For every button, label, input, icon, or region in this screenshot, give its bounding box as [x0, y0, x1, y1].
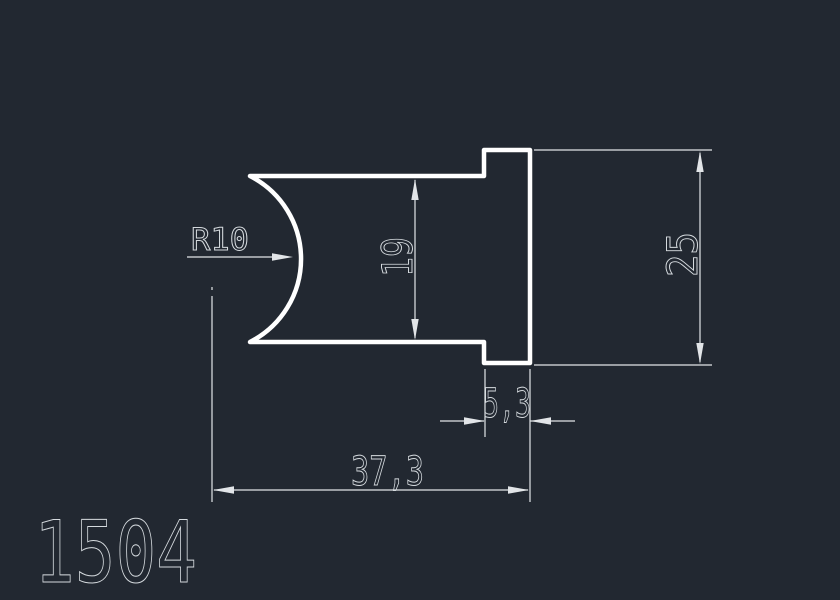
dim-arrowhead-up-icon [696, 151, 703, 172]
overall-height-label: 25 [658, 232, 707, 277]
dim-overall-width: 37,3 [212, 287, 529, 502]
dim-radius: R10 [187, 222, 293, 261]
cad-drawing: R10 19 25 5,3 [0, 0, 840, 600]
radius-label: R10 [191, 222, 249, 258]
dim-arrowhead-right-icon [508, 486, 529, 493]
dim-arrowhead-right-icon [464, 417, 485, 424]
dim-inner-height: 19 [373, 179, 422, 340]
cad-canvas: R10 19 25 5,3 [0, 0, 840, 600]
part-number: 1504 [34, 503, 197, 600]
dim-flange-thickness: 5,3 [440, 369, 575, 502]
dim-arrowhead-down-icon [696, 343, 703, 364]
dim-overall-height: 25 [534, 150, 712, 365]
inner-height-label: 19 [373, 237, 422, 277]
radius-arrowhead-icon [272, 253, 293, 261]
dim-arrowhead-down-icon [411, 319, 418, 340]
overall-width-label: 37,3 [351, 449, 424, 495]
dim-arrowhead-left-icon [530, 417, 551, 424]
flange-thickness-label: 5,3 [483, 381, 531, 427]
dim-arrowhead-up-icon [411, 179, 418, 200]
dim-arrowhead-left-icon [213, 486, 234, 493]
